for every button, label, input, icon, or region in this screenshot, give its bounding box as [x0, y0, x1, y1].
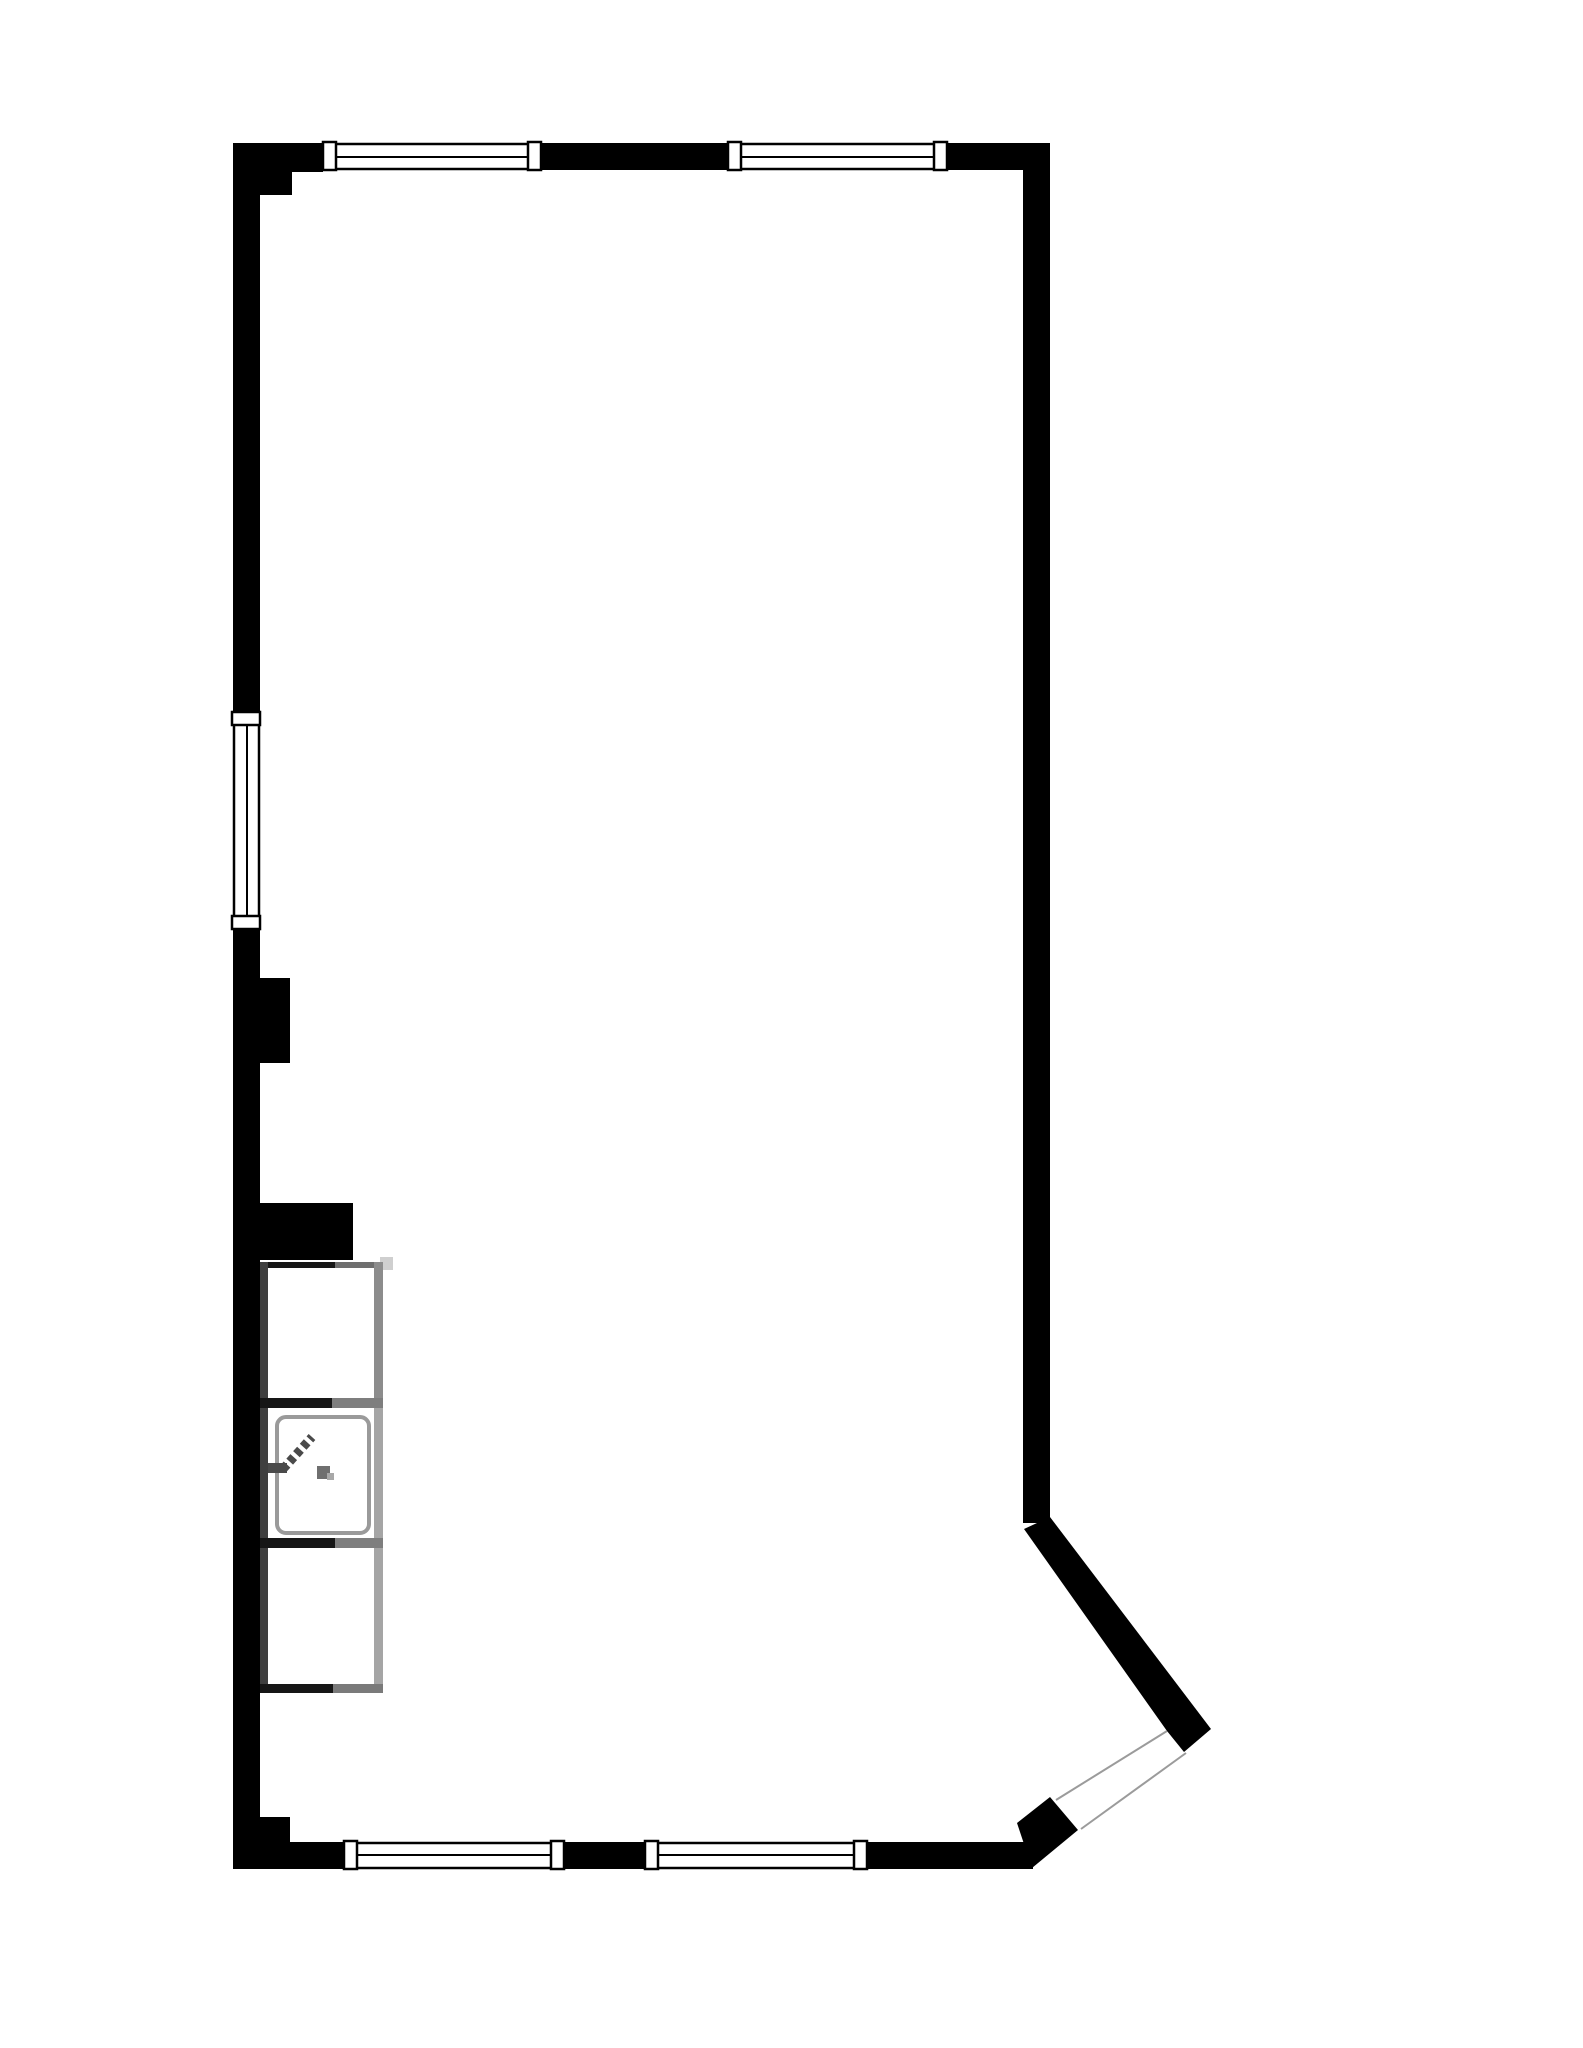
right-wall — [1023, 143, 1050, 1523]
sink-cabinet-left-edge — [260, 1408, 268, 1538]
window-top-2-frame-left — [728, 142, 741, 170]
windows — [232, 142, 947, 1869]
door-opening-line-inner — [1056, 1731, 1167, 1800]
divider1-dark — [260, 1398, 332, 1408]
cabinet3-right-edge — [374, 1548, 383, 1692]
kitchen-wall-stub — [233, 1203, 353, 1260]
cabinet1-top-dark — [260, 1262, 335, 1268]
window-bottom-1-frame-right — [551, 1841, 564, 1869]
sink-drain-dot — [327, 1473, 334, 1480]
door-opening — [1056, 1731, 1186, 1829]
floor-plan-canvas — [0, 0, 1583, 2048]
window-left-frame-top — [232, 712, 260, 725]
window-top-1-frame-right — [528, 142, 541, 170]
divider2-dark — [260, 1538, 335, 1548]
pilaster-bottom — [233, 1817, 290, 1869]
kitchen-counter — [260, 1257, 393, 1693]
window-bottom-2-frame-left — [645, 1841, 658, 1869]
cabinet1-left-edge — [260, 1262, 268, 1406]
diagonal-wall — [1024, 1517, 1211, 1752]
cabinet3-left-edge — [260, 1548, 268, 1692]
sink-cabinet-right-edge — [374, 1408, 383, 1538]
cabinet3-bottom-dark — [260, 1684, 333, 1693]
cabinet1-right-edge — [374, 1262, 383, 1406]
window-top-2-frame-right — [934, 142, 947, 170]
divider2-gray — [335, 1538, 383, 1548]
pilaster-top-inner — [233, 143, 292, 195]
divider1-gray — [332, 1398, 383, 1408]
cabinet3-bottom-gray — [333, 1684, 383, 1693]
window-top-1-frame-left — [323, 142, 336, 170]
left-wall-bump — [233, 978, 290, 1063]
door-opening-line-outer — [1081, 1753, 1186, 1829]
window-bottom-2-frame-right — [854, 1841, 867, 1869]
floor-plan-svg — [0, 0, 1583, 2048]
window-left-frame-bottom — [232, 916, 260, 929]
window-bottom-1-frame-left — [344, 1841, 357, 1869]
